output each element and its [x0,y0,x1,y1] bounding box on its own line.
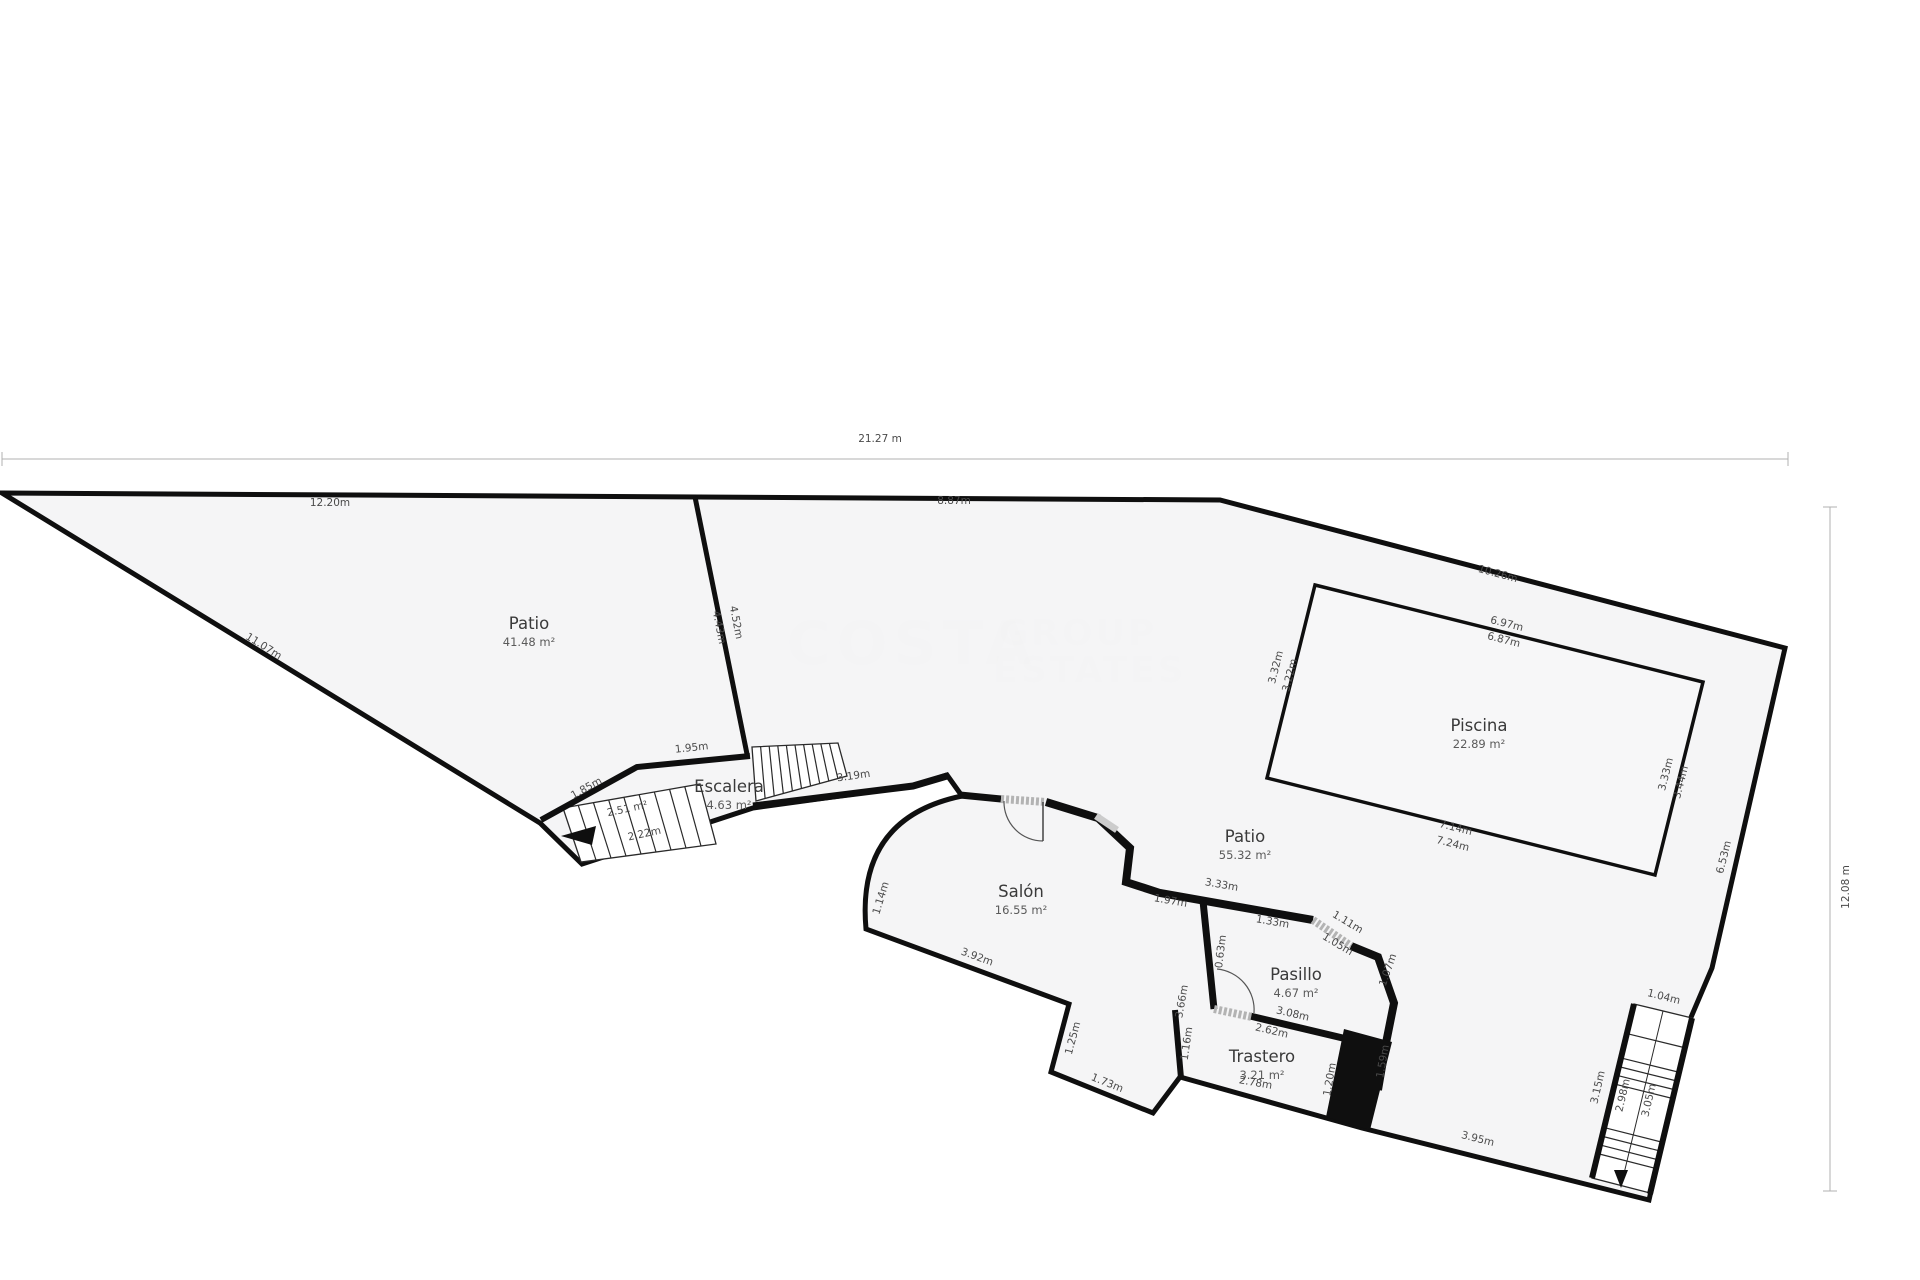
room-area-label: 55.32 m² [1219,848,1271,862]
dimension-label: 12.20m [310,497,350,509]
plot-boundary [2,493,1785,1200]
room-label: Patio [509,614,549,633]
room-label: Trastero [1228,1047,1295,1066]
room-label: Salón [998,882,1044,901]
room-area-label: 4.67 m² [1273,986,1318,1000]
dimension-label: 12.08 m [1840,865,1852,909]
room-label: Patio [1225,827,1265,846]
room-label: Piscina [1451,716,1508,735]
room-area-label: 4.63 m² [706,798,751,812]
wall [960,795,1001,799]
room-label: Pasillo [1270,965,1322,984]
floor-plan-page: COSTAGROUPESTATESPatio41.48 m²Patio55.32… [0,0,1920,1280]
floor-plan-svg: COSTAGROUPESTATESPatio41.48 m²Patio55.32… [0,0,1920,1280]
dimension-label: 8.87m [937,495,971,507]
room-area-label: 16.55 m² [995,903,1047,917]
dimension-label: 21.27 m [858,433,902,445]
room-area-label: 41.48 m² [503,635,555,649]
room-area-label: 22.89 m² [1453,737,1505,751]
room-label: Escalera [694,777,764,796]
